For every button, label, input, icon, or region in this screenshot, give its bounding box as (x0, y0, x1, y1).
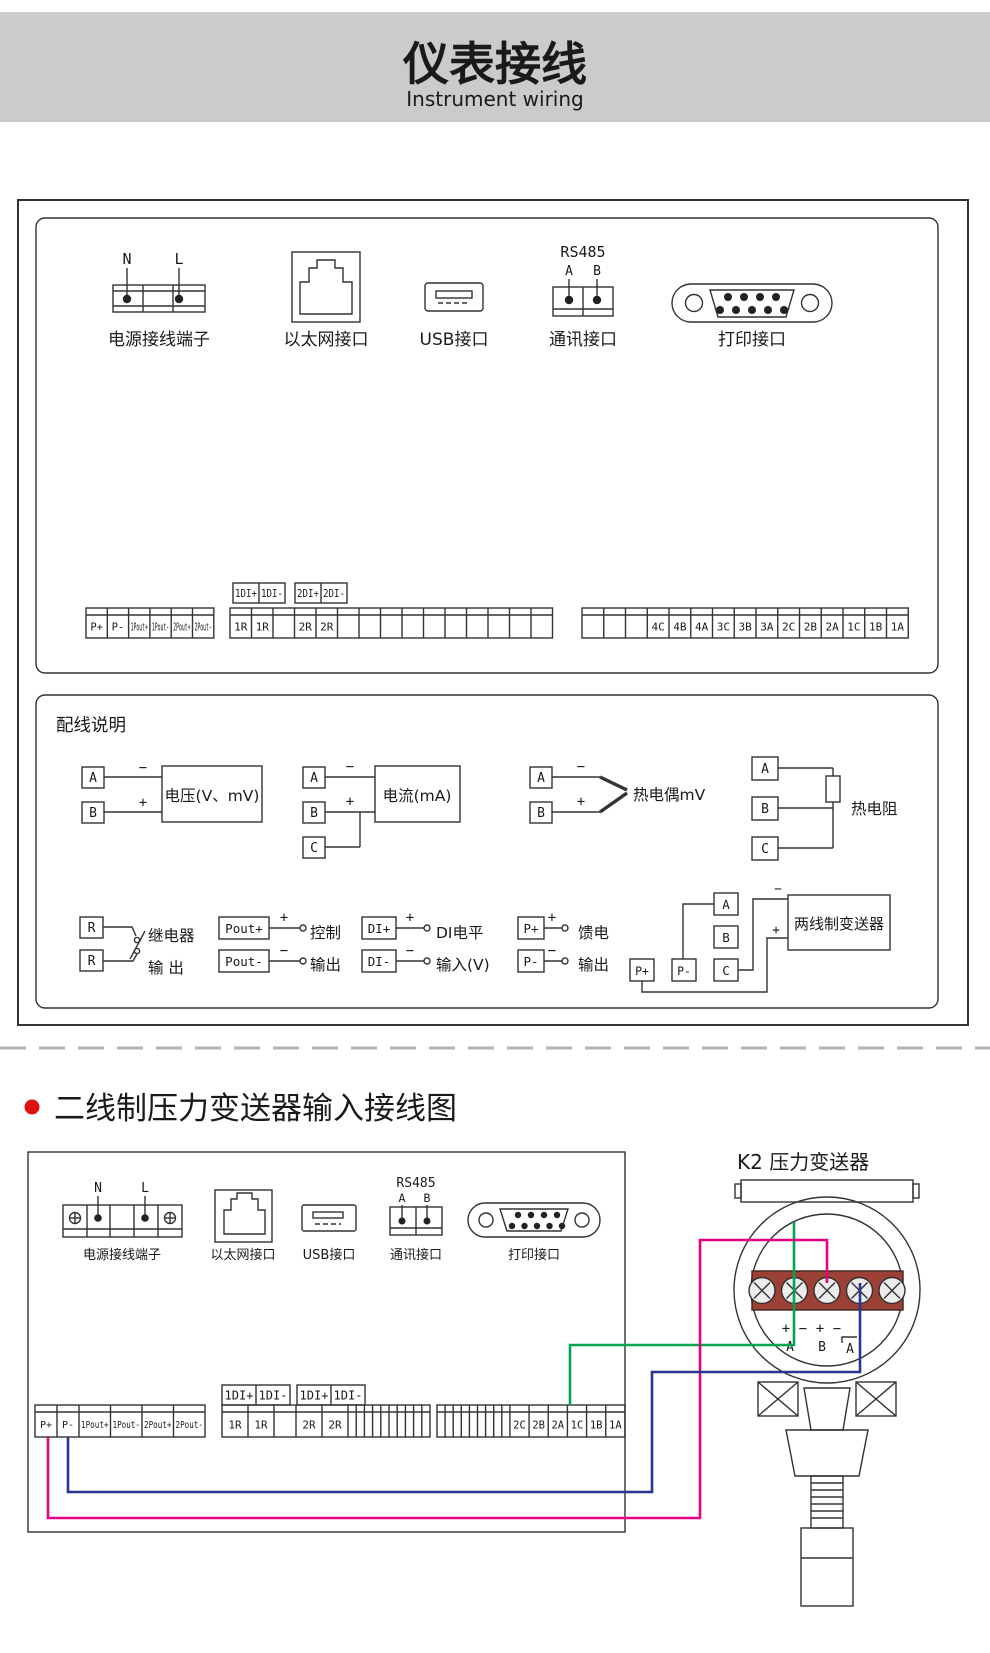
minus-sign: − (833, 1321, 841, 1337)
usb-port: USB接口 (302, 1205, 356, 1263)
di-pair-1: 1DI+1DI- (233, 583, 285, 603)
terminal-strip-right: 2C2B2A1C1B1A (437, 1405, 625, 1437)
plus-sign: + (139, 795, 147, 811)
terminal-cell-label: 1B (590, 1419, 603, 1431)
section2-heading: 二线制压力变送器输入接线图 (25, 1091, 458, 1127)
minus-sign: − (346, 759, 354, 775)
plus-sign: + (577, 794, 585, 810)
terminal-cell-label: 2Pout+ (144, 1420, 172, 1431)
transmitter-fittings (758, 1382, 896, 1606)
plus-sign: + (782, 1321, 790, 1337)
comm-a-label: A (565, 264, 573, 279)
minus-sign: − (280, 943, 288, 959)
plus-sign: + (280, 910, 288, 926)
strip-frame (230, 608, 553, 638)
terminal-a: A (537, 771, 545, 786)
wiring-feed: P+ P- + − 馈电 输出 (518, 910, 609, 974)
current-label: 电流(mA) (383, 787, 452, 805)
terminal-cell-label: 1A (891, 620, 905, 633)
plus-sign: + (772, 923, 780, 938)
terminal-cell-label: 2DI- (323, 587, 345, 600)
outer-frame (18, 200, 968, 1025)
terminal-strip-middle: 1R1R2R2R (230, 608, 553, 638)
terminal-cell-label: 2A (551, 1419, 564, 1431)
terminal-cell-label: P- (62, 1420, 74, 1431)
minus-sign: − (406, 943, 414, 959)
terminal-b: B (89, 806, 97, 821)
minus-sign: − (139, 760, 147, 776)
terminal-cell-label: 2DI+ (297, 587, 319, 600)
terminal-cell-label: 2R (302, 1418, 316, 1431)
terminal-l-label: L (174, 250, 183, 268)
terminal-r2: R (88, 954, 96, 969)
plus-sign: + (406, 910, 414, 926)
plus-sign: + (346, 794, 354, 810)
terminal-b: B (722, 930, 730, 945)
terminal-cell-label: 1R (228, 1418, 242, 1431)
power-terminal: N L 电源接线端子 (63, 1181, 182, 1263)
wiring-current: A B C − + 电流(mA) (303, 759, 460, 858)
rs485-label: RS485 (396, 1176, 435, 1191)
terminal-strip-left: P+P-1Pout+1Pout-2Pout+2Pout- (35, 1405, 205, 1437)
terminal-di-plus: DI+ (368, 921, 391, 936)
terminal-c: C (761, 842, 769, 857)
top-diagram-frame (18, 200, 968, 1025)
ethernet-port: 以太网接口 (210, 1190, 275, 1263)
power-terminal-label: 电源接线端子 (108, 330, 210, 350)
di-label-1: DI电平 (436, 924, 484, 942)
wiring-rtd: A B C 热电阻 (752, 757, 898, 860)
plus-sign: + (816, 1321, 824, 1337)
terminal-cell-label: 1DI+ (300, 1388, 329, 1402)
comm-a-label: A (399, 1191, 406, 1205)
terminal-c: C (722, 963, 730, 978)
wiring-control: Pout+ Pout- + − 控制 输出 (219, 910, 341, 974)
terminal-a: A (89, 771, 97, 786)
terminal-cell-label: 1DI- (259, 1388, 288, 1402)
terminal-cell-label: 1Pout- (152, 621, 169, 633)
terminal-cell-label: P+ (40, 1420, 52, 1431)
terminal-cell-label: 1C (571, 1419, 584, 1431)
resistor-icon (826, 776, 840, 802)
terminal-cell-label: 3A (760, 620, 774, 633)
di-label-2: 输入(V) (436, 956, 490, 974)
relay-label-1: 继电器 (148, 927, 195, 945)
rj45-icon (224, 1193, 265, 1234)
terminal-c: C (310, 841, 318, 856)
transmitter-cap (741, 1180, 913, 1202)
terminal-cell-label: 1R (256, 620, 270, 633)
terminal-cell-label: 2R (320, 620, 334, 633)
terminal-strip-right: 4C4B4A3C3B3A2C2B2A1C1B1A (582, 608, 908, 638)
usb-label: USB接口 (303, 1247, 356, 1263)
wire-green (570, 1222, 794, 1405)
hex-nut (786, 1430, 868, 1476)
minus-sign: − (774, 882, 782, 897)
usb-port: USB接口 (420, 283, 489, 350)
threaded-stem (811, 1476, 843, 1528)
printer-port: 打印接口 (672, 284, 832, 350)
terminal-a: A (722, 897, 730, 912)
terminal-cell-label: 4C (652, 620, 665, 633)
wire-blue (68, 1283, 860, 1492)
terminal-cell-label: 4B (673, 620, 687, 633)
usb-slot-icon (313, 1212, 343, 1218)
comm-port: RS485 A B 通讯接口 (549, 243, 617, 350)
feed-label-1: 馈电 (578, 924, 609, 942)
terminal-cell-label: 1B (869, 620, 883, 633)
terminal-cell-label: 2C (782, 620, 795, 633)
header: 仪表接线 Instrument wiring (0, 12, 990, 122)
ethernet-label: 以太网接口 (284, 330, 369, 350)
terminal-b-label: B (818, 1340, 826, 1355)
terminal-cell-label: 1Pout+ (131, 621, 148, 633)
terminal-cell-label: 1DI+ (225, 1388, 254, 1402)
terminal-pout-plus: Pout+ (225, 921, 263, 936)
rear-panel: N L 电源接线端子 以太网接口 USB接口 RS48 (86, 243, 908, 638)
printer-label: 打印接口 (508, 1247, 560, 1263)
power-terminal: N L 电源接线端子 (108, 250, 210, 350)
terminal-cell-label: 1Pout+ (81, 1420, 109, 1431)
terminal-cell-label: 2B (532, 1419, 545, 1431)
instrument-wiring-page: 仪表接线 Instrument wiring N L 电源接线端子 以 (0, 0, 990, 1653)
terminal-cell-label: 2C (513, 1419, 526, 1431)
terminal-cell-label: P+ (90, 621, 103, 633)
wiring-two-wire: P+ P- A B C − + 两线制变送器 (630, 882, 890, 992)
terminal-cell-label: 1DI- (261, 587, 283, 600)
terminal-l-label: L (141, 1181, 149, 1196)
terminal-cell-label: 2Pout- (176, 1420, 204, 1431)
di-pair-1: 1DI+1DI- (222, 1385, 290, 1405)
terminal-a2-label: A (846, 1342, 854, 1357)
terminal-n-label: N (94, 1181, 102, 1196)
terminal-cell-label: 1DI+ (235, 587, 257, 600)
terminal-cell-label: 3C (717, 620, 730, 633)
section2-title: 二线制压力变送器输入接线图 (54, 1091, 457, 1127)
bullet-icon (25, 1100, 40, 1115)
control-label-1: 控制 (310, 924, 341, 942)
terminal-p-plus: P+ (635, 964, 649, 978)
terminal-cell-label: 1A (609, 1419, 622, 1431)
comm-b-label: B (424, 1191, 431, 1205)
terminal-cell-label: 2A (826, 620, 840, 633)
terminal-n-label: N (122, 250, 131, 268)
two-wire-transmitter-label: 两线制变送器 (794, 915, 884, 933)
di-pair-2: 2DI+2DI- (295, 583, 347, 603)
usb-slot-icon (436, 291, 472, 298)
pressure-transmitter: K2 压力变送器 + − + − A B A (734, 1150, 920, 1606)
usb-label: USB接口 (420, 330, 489, 350)
minus-sign: − (799, 1321, 807, 1337)
terminal-a: A (761, 762, 769, 777)
terminal-b: B (537, 806, 545, 821)
terminal-cell-label: 1R (234, 620, 248, 633)
ethernet-port: 以太网接口 (284, 252, 369, 350)
terminal-strip-middle: 1R1R2R2R (222, 1405, 430, 1437)
terminal-cell-label: 3B (739, 620, 753, 633)
minus-sign: − (548, 943, 556, 959)
voltage-label: 电压(V、mV) (165, 787, 260, 805)
terminal-r1: R (88, 921, 96, 936)
transmitter-title: K2 压力变送器 (737, 1150, 869, 1174)
plus-sign: + (548, 910, 556, 926)
bottom-panel: N L 电源接线端子 以太网接口 (28, 1152, 625, 1532)
terminal-b: B (310, 806, 318, 821)
relay-label-2: 输 出 (148, 959, 184, 977)
terminal-cell-label: 2Pout- (195, 621, 212, 633)
printer-label: 打印接口 (718, 330, 786, 350)
control-label-2: 输出 (310, 956, 341, 974)
terminal-cell-label: 2B (804, 620, 818, 633)
comm-label: 通讯接口 (549, 330, 617, 350)
wiring-guide: 配线说明 A B − + 电压(V、mV) A B C − (56, 716, 898, 992)
terminal-cell-label: 1R (254, 1418, 268, 1431)
strip-frame (222, 1405, 430, 1437)
terminal-di-minus: DI- (368, 954, 391, 969)
signal-wires (48, 1222, 860, 1518)
di-pair-2: 1DI+1DI- (297, 1385, 365, 1405)
terminal-cell-label: 1C (847, 620, 860, 633)
printer-port: 打印接口 (468, 1203, 600, 1263)
terminal-a: A (310, 771, 318, 786)
terminal-cell-label: 2R (328, 1418, 342, 1431)
ethernet-label: 以太网接口 (210, 1247, 275, 1263)
terminal-cell-label: 2R (299, 620, 313, 633)
comm-port: RS485 A B 通讯接口 (390, 1176, 442, 1263)
rear-panel-frame (36, 218, 938, 673)
power-terminal-label: 电源接线端子 (83, 1247, 161, 1263)
terminal-pout-minus: Pout- (225, 954, 263, 969)
terminal-p-minus: P- (523, 954, 538, 969)
comm-label: 通讯接口 (390, 1247, 442, 1263)
wiring-thermocouple: A B − + 热电偶mV (530, 759, 706, 823)
terminal-p-plus: P+ (523, 921, 538, 936)
minus-sign: − (577, 759, 585, 775)
terminal-cell-label: 2Pout+ (173, 621, 190, 633)
page-subtitle: Instrument wiring (406, 87, 583, 111)
wiring-di: DI+ DI- + − DI电平 输入(V) (362, 910, 490, 974)
terminal-p-minus: P- (677, 964, 691, 978)
wiring-relay: R R 继电器 输 出 (80, 917, 195, 977)
terminal-cell-label: 1DI- (334, 1388, 363, 1402)
comm-b-label: B (593, 264, 601, 279)
wiring-guide-title: 配线说明 (56, 716, 126, 736)
terminal-cell-label: 1Pout- (113, 1420, 141, 1431)
pressure-port (801, 1528, 853, 1606)
terminal-strip-left: P+P-1Pout+1Pout-2Pout+2Pout- (86, 608, 214, 638)
wiring-voltage: A B − + 电压(V、mV) (82, 760, 262, 823)
terminal-cell-label: 4A (695, 620, 709, 633)
rtd-label: 热电阻 (851, 800, 898, 818)
terminal-cell-label: P- (112, 621, 125, 633)
switch-blade-icon (130, 931, 145, 959)
rs485-label: RS485 (560, 243, 605, 261)
feed-label-2: 输出 (578, 956, 609, 974)
thermocouple-label: 热电偶mV (633, 786, 706, 804)
wire-magenta (48, 1240, 827, 1518)
page-title: 仪表接线 (402, 37, 587, 91)
terminal-b: B (761, 802, 769, 817)
rj45-icon (300, 260, 352, 314)
